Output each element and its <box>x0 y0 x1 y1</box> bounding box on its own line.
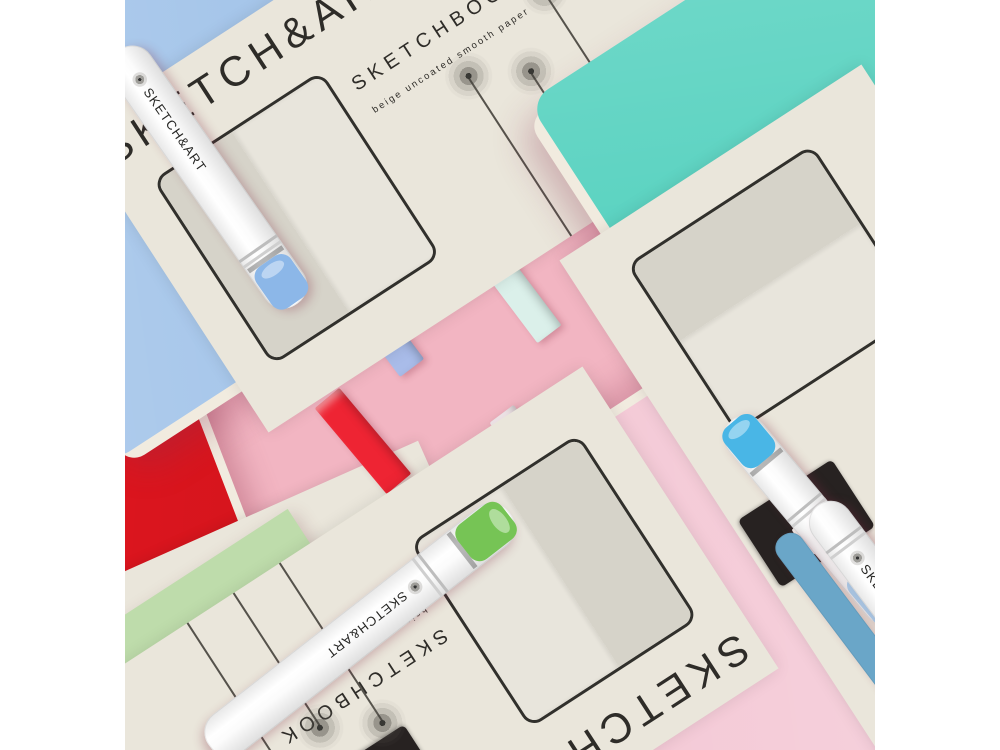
dandelion-puff-icon <box>435 43 501 109</box>
matte: SKETCH&ART SKETCHBOOK beige uncoated smo… <box>0 0 1000 750</box>
dandelion-logo-icon <box>404 576 426 598</box>
product-photo: SKETCH&ART SKETCHBOOK beige uncoated smo… <box>125 0 875 750</box>
